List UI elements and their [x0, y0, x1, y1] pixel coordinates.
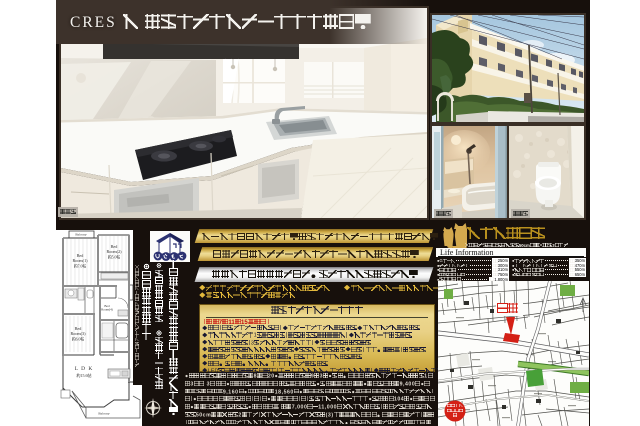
svg-text:約15.6帖: 約15.6帖: [77, 372, 92, 378]
svg-text:約7.0帖: 約7.0帖: [74, 263, 87, 268]
svg-text:約5.0帖: 約5.0帖: [108, 254, 121, 259]
svg-text:Balcony: Balcony: [75, 233, 87, 237]
svg-text:Room(1): Room(1): [72, 258, 88, 263]
svg-text:Room(4): Room(4): [101, 308, 113, 312]
svg-text:Balcony: Balcony: [98, 412, 110, 416]
svg-text:Room(3): Room(3): [70, 331, 86, 336]
svg-text:Room(2): Room(2): [106, 249, 122, 254]
svg-text:約6.0帖: 約6.0帖: [72, 336, 85, 341]
svg-text:L D K: L D K: [75, 366, 94, 372]
